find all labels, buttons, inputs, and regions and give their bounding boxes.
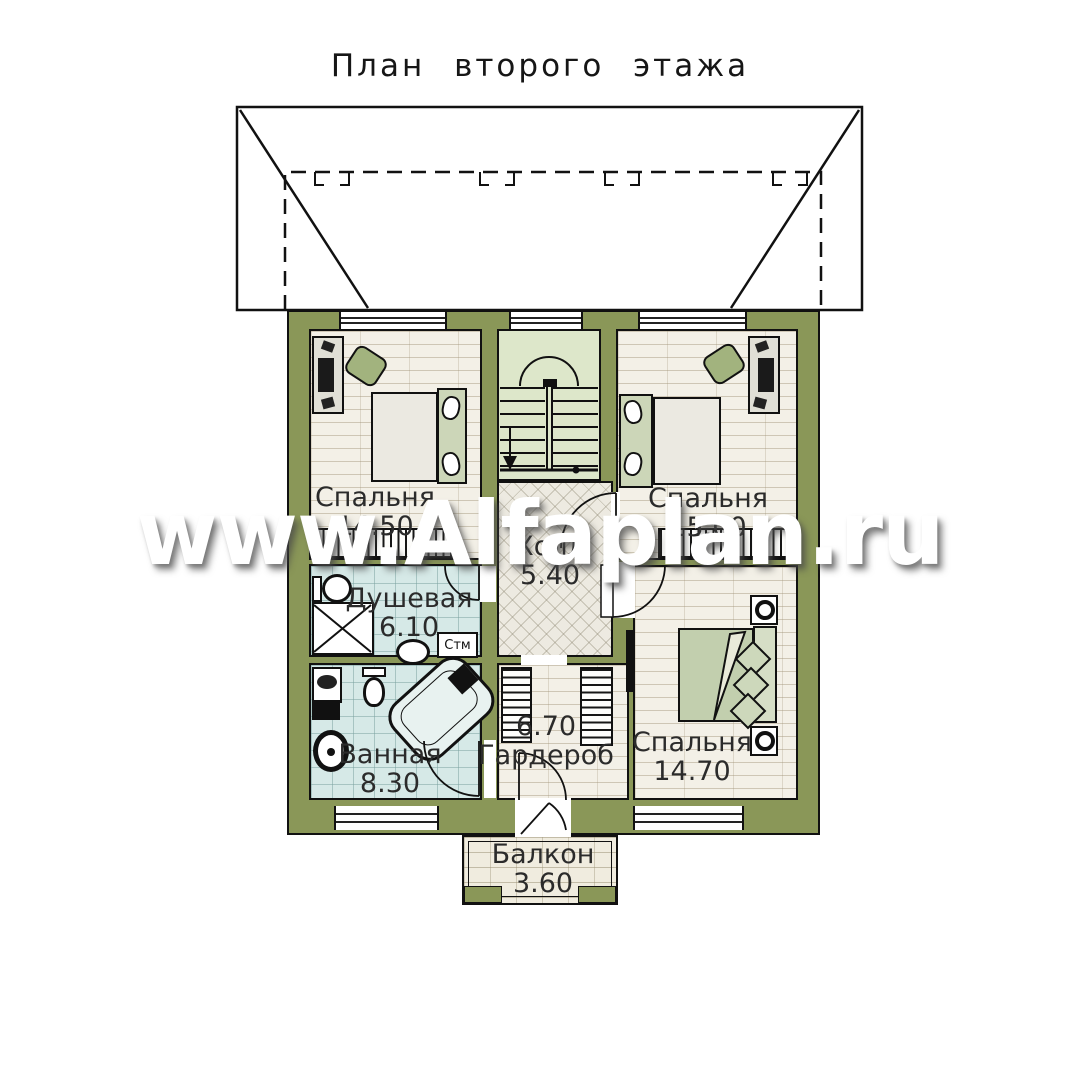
window bbox=[633, 806, 744, 830]
roof-outline bbox=[237, 107, 862, 310]
balcony-door-opening bbox=[515, 798, 571, 837]
door-opening-wardrobe bbox=[521, 655, 567, 665]
lamp bbox=[755, 731, 775, 751]
window bbox=[334, 806, 439, 830]
room-stairwell bbox=[497, 329, 601, 481]
room-area: 8.30 bbox=[360, 768, 420, 799]
round-sink-drain bbox=[327, 748, 335, 756]
window bbox=[638, 312, 747, 329]
page-title: План второго этажа bbox=[331, 48, 749, 84]
vanity-basin bbox=[317, 675, 337, 689]
room-area: 6.10 bbox=[379, 612, 439, 643]
room-name: Душевая bbox=[345, 583, 472, 614]
room-area: 14.70 bbox=[653, 756, 730, 787]
room-label-balcony: Балкон 3.60 bbox=[492, 840, 595, 898]
toilet-tank bbox=[362, 667, 386, 677]
window bbox=[339, 312, 447, 329]
desk-monitor bbox=[318, 358, 334, 392]
tv bbox=[626, 630, 633, 692]
bed bbox=[653, 397, 721, 485]
toilet bbox=[363, 677, 385, 707]
room-name: Спальня bbox=[632, 727, 752, 758]
desk-monitor bbox=[758, 358, 774, 392]
room-label-bedroom-bottom: Спальня 14.70 bbox=[632, 728, 752, 786]
room-label-bathroom: Ванная 8.30 bbox=[338, 740, 441, 798]
room-name: Ванная bbox=[338, 739, 441, 770]
towel-dryer bbox=[312, 700, 340, 720]
room-area: 3.60 bbox=[513, 868, 573, 899]
bed bbox=[371, 392, 438, 482]
floor-plan-page: План второго этажа bbox=[0, 0, 1080, 1080]
room-label-shower: Душевая 6.10 bbox=[345, 584, 472, 642]
watermark: www.Alfaplan.ru bbox=[136, 482, 943, 585]
room-name: Балкон bbox=[492, 839, 595, 870]
window bbox=[509, 312, 583, 329]
lamp bbox=[755, 600, 775, 620]
room-label-wardrobe: 6.70 Гардероб bbox=[478, 712, 614, 770]
room-area: 6.70 bbox=[516, 711, 576, 742]
room-name: Гардероб bbox=[478, 740, 614, 771]
